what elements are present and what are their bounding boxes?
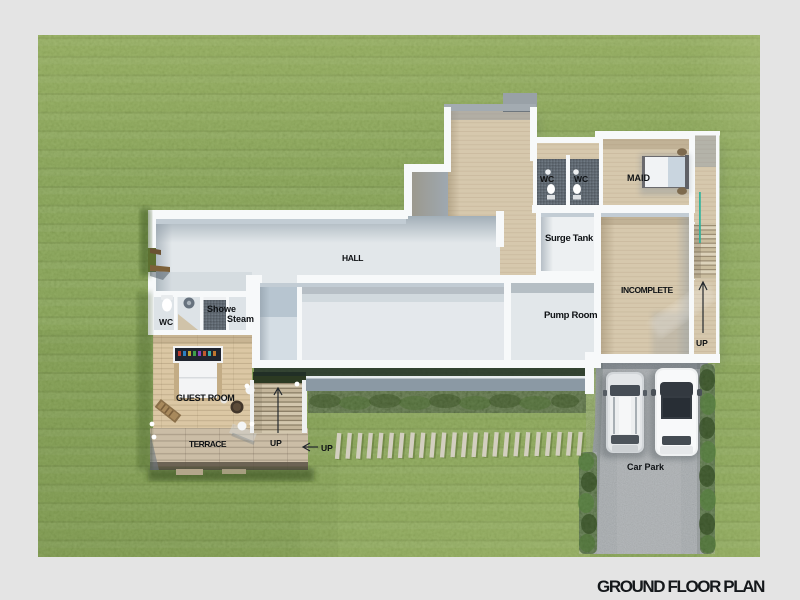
svg-text:WC: WC bbox=[159, 317, 173, 327]
svg-text:UP: UP bbox=[321, 443, 333, 453]
svg-text:WC: WC bbox=[540, 174, 554, 184]
svg-text:TERRACE: TERRACE bbox=[189, 439, 227, 449]
svg-text:Showe: Showe bbox=[207, 304, 236, 314]
svg-text:MAID: MAID bbox=[627, 173, 650, 183]
svg-text:Surge Tank: Surge Tank bbox=[545, 233, 594, 244]
svg-text:Steam: Steam bbox=[227, 314, 254, 324]
svg-text:WC: WC bbox=[574, 174, 588, 184]
svg-text:INCOMPLETE: INCOMPLETE bbox=[621, 285, 673, 295]
svg-text:GROUND FLOOR PLAN: GROUND FLOOR PLAN bbox=[597, 577, 765, 596]
svg-text:UP: UP bbox=[696, 338, 708, 348]
svg-text:Pump Room: Pump Room bbox=[544, 310, 597, 321]
svg-text:HALL: HALL bbox=[342, 253, 363, 263]
svg-text:Car Park: Car Park bbox=[627, 462, 665, 472]
svg-text:GUEST ROOM: GUEST ROOM bbox=[176, 393, 235, 403]
svg-text:UP: UP bbox=[270, 438, 282, 448]
